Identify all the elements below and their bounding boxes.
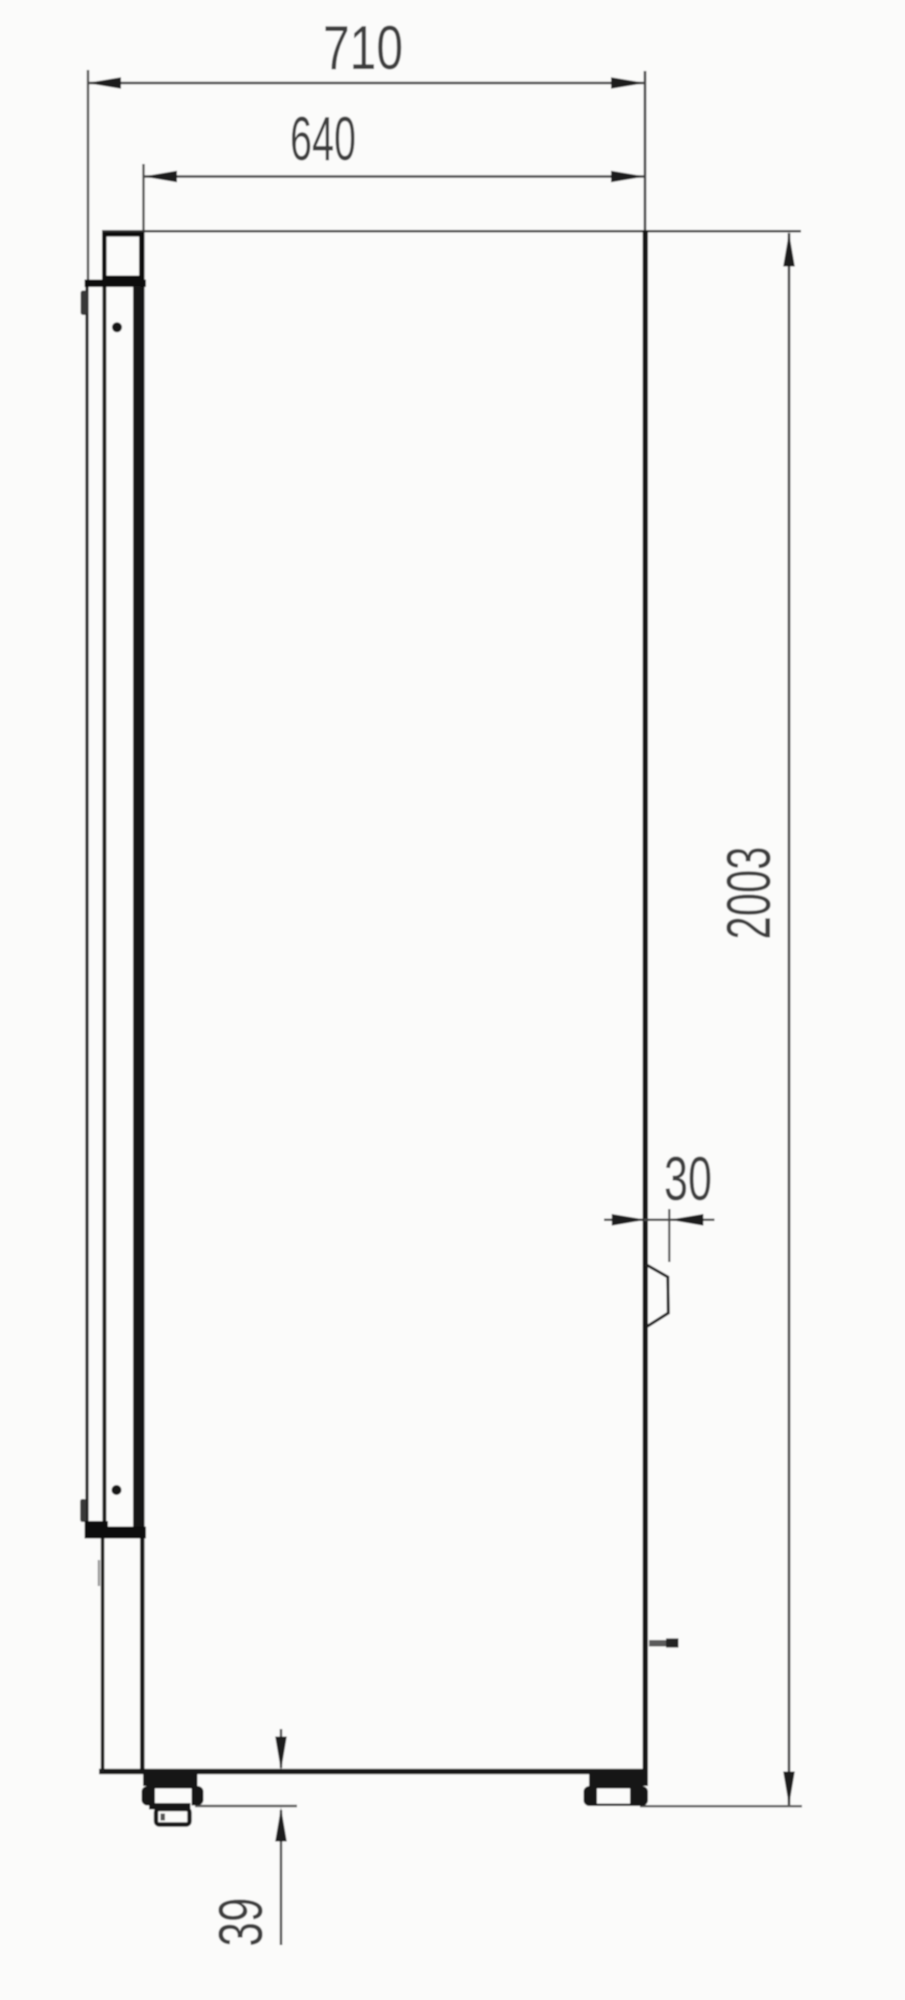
svg-text:640: 640 xyxy=(290,105,356,174)
svg-text:710: 710 xyxy=(323,14,403,83)
svg-text:39: 39 xyxy=(207,1898,276,1947)
svg-text:2003: 2003 xyxy=(715,847,784,940)
svg-text:30: 30 xyxy=(664,1145,712,1214)
